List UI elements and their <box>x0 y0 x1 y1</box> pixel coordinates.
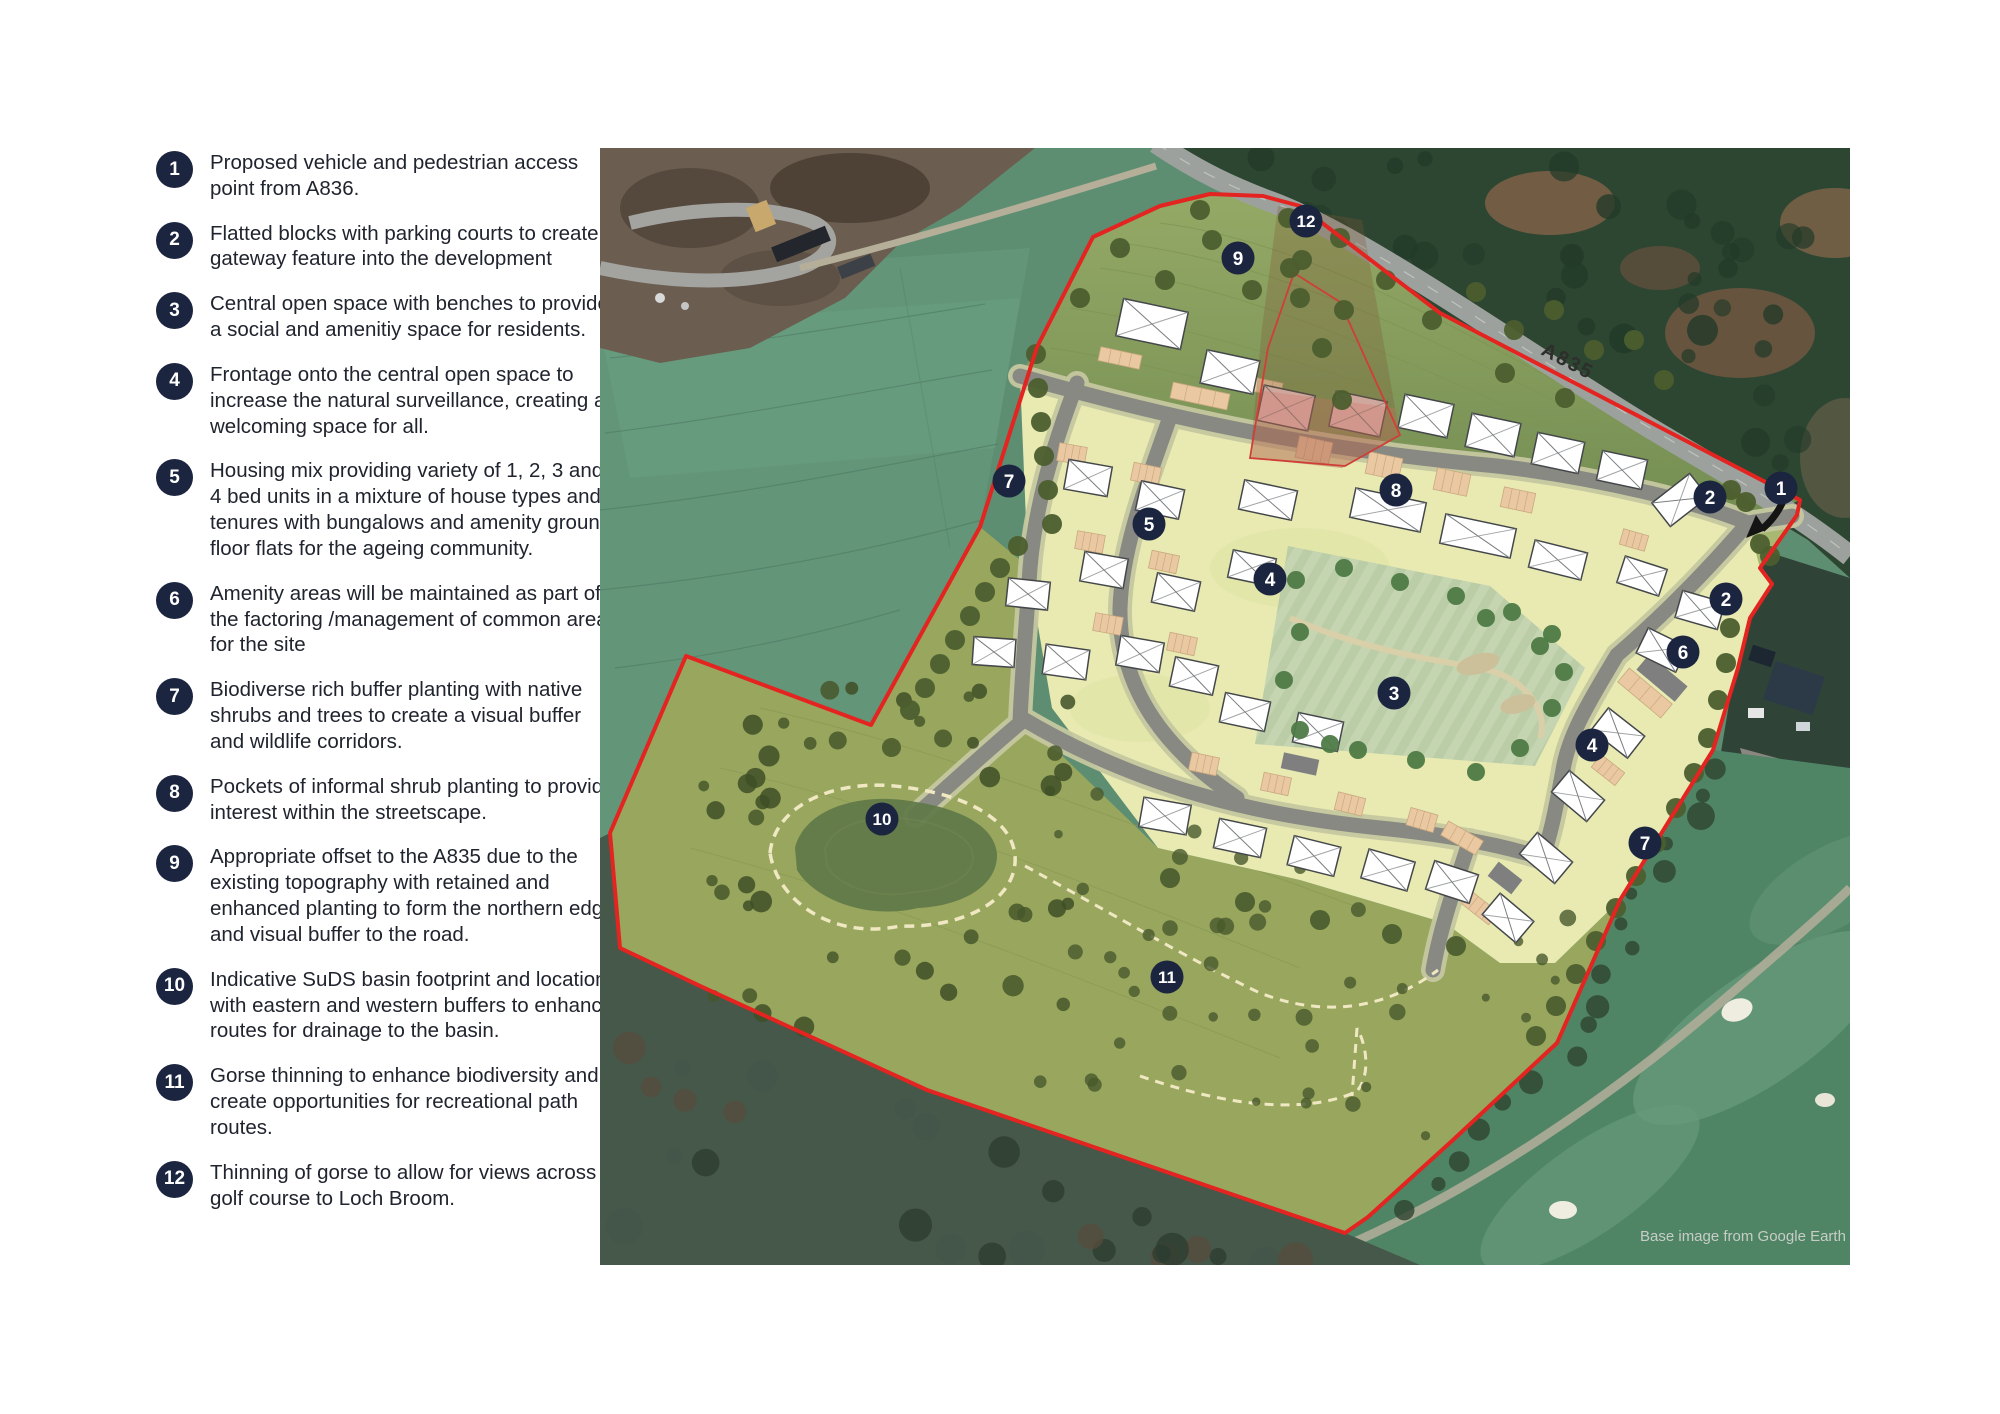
open-space-tree <box>1407 751 1425 769</box>
open-space-tree <box>1321 735 1339 753</box>
legend-item-text: Pockets of informal shrub planting to pr… <box>210 774 618 826</box>
buffer-tree <box>1466 282 1486 302</box>
buffer-tree <box>1242 280 1262 300</box>
buffer-tree <box>1446 936 1466 956</box>
svg-text:12: 12 <box>1297 212 1316 231</box>
legend-item: 7Biodiverse rich buffer planting with na… <box>156 677 618 754</box>
legend-item-text: Gorse thinning to enhance biodiversity a… <box>210 1063 618 1140</box>
map-badge-9: 9 <box>1222 242 1255 275</box>
legend-badge-number: 5 <box>156 459 193 496</box>
masterplan-map: A835 Base image from Google Earth 129758… <box>600 148 1850 1265</box>
svg-text:2: 2 <box>1721 590 1732 611</box>
open-space-tree <box>1555 663 1573 681</box>
legend-item: 3Central open space with benches to prov… <box>156 291 618 343</box>
svg-text:3: 3 <box>1389 684 1400 705</box>
svg-text:4: 4 <box>1587 736 1598 757</box>
svg-text:2: 2 <box>1705 488 1716 509</box>
buffer-tree <box>1042 514 1062 534</box>
buffer-tree <box>1720 618 1740 638</box>
legend-item-text: Indicative SuDS basin footprint and loca… <box>210 967 618 1044</box>
legend-item-text: Amenity areas will be maintained as part… <box>210 581 618 658</box>
masterplan-artwork: A835 Base image from Google Earth 129758… <box>600 148 1850 1265</box>
legend-badge-number: 7 <box>156 678 193 715</box>
buffer-tree <box>960 606 980 626</box>
buffer-tree <box>1031 412 1051 432</box>
svg-text:7: 7 <box>1640 834 1651 855</box>
open-space-tree <box>1291 721 1309 739</box>
buffer-tree <box>1312 338 1332 358</box>
house-footprint <box>972 637 1016 668</box>
buffer-tree <box>1544 300 1564 320</box>
legend-badge-number: 8 <box>156 775 193 812</box>
svg-text:5: 5 <box>1144 515 1155 536</box>
buffer-tree <box>1310 910 1330 930</box>
legend-item-text: Appropriate offset to the A835 due to th… <box>210 844 618 947</box>
map-badge-4: 4 <box>1254 563 1287 596</box>
buffer-tree <box>1155 270 1175 290</box>
open-space-tree <box>1467 763 1485 781</box>
buffer-tree <box>1202 230 1222 250</box>
legend-item: 11Gorse thinning to enhance biodiversity… <box>156 1063 618 1140</box>
legend-item: 5Housing mix providing variety of 1, 2, … <box>156 458 618 561</box>
buffer-tree <box>1008 536 1028 556</box>
legend-item: 2Flatted blocks with parking courts to c… <box>156 221 618 273</box>
buffer-tree <box>1160 868 1180 888</box>
svg-text:9: 9 <box>1233 249 1244 270</box>
buffer-tree <box>1495 363 1515 383</box>
house-footprint <box>1042 644 1090 680</box>
buffer-tree <box>1110 238 1130 258</box>
open-space-tree <box>1511 739 1529 757</box>
buffer-tree <box>990 558 1010 578</box>
open-space-tree <box>1543 699 1561 717</box>
buffer-tree <box>915 678 935 698</box>
legend-item-text: Frontage onto the central open space to … <box>210 362 618 439</box>
buffer-tree <box>1332 390 1352 410</box>
map-badge-6: 6 <box>1667 636 1700 669</box>
open-space-tree <box>1291 623 1309 641</box>
legend-item-text: Proposed vehicle and pedestrian access p… <box>210 150 618 202</box>
buffer-tree <box>1235 892 1255 912</box>
map-badge-2: 2 <box>1694 481 1727 514</box>
buffer-tree <box>1504 320 1524 340</box>
buffer-tree <box>975 582 995 602</box>
legend-item-text: Housing mix providing variety of 1, 2, 3… <box>210 458 618 561</box>
buffer-tree <box>900 700 920 720</box>
svg-text:7: 7 <box>1004 472 1015 493</box>
buffer-tree <box>1546 996 1566 1016</box>
open-space-tree <box>1477 609 1495 627</box>
buffer-tree <box>1034 446 1054 466</box>
svg-text:10: 10 <box>873 810 892 829</box>
legend-item-text: Flatted blocks with parking courts to cr… <box>210 221 618 273</box>
legend-badge-number: 11 <box>156 1064 193 1101</box>
open-space-tree <box>1335 559 1353 577</box>
buffer-tree <box>1624 330 1644 350</box>
house-footprint <box>1006 578 1051 610</box>
map-badge-3: 3 <box>1378 677 1411 710</box>
open-space-tree <box>1503 603 1521 621</box>
legend-badge-number: 4 <box>156 363 193 400</box>
svg-text:11: 11 <box>1158 968 1176 987</box>
map-badge-12: 12 <box>1290 205 1323 238</box>
buffer-tree <box>1190 200 1210 220</box>
legend-item: 9Appropriate offset to the A835 due to t… <box>156 844 618 947</box>
legend-item: 12Thinning of gorse to allow for views a… <box>156 1160 618 1212</box>
buffer-tree <box>1280 258 1300 278</box>
open-space-tree <box>1287 571 1305 589</box>
map-badge-8: 8 <box>1380 474 1413 507</box>
buffer-tree <box>1038 480 1058 500</box>
buffer-tree <box>1526 1026 1546 1046</box>
svg-text:1: 1 <box>1776 479 1787 500</box>
open-space-tree <box>1349 741 1367 759</box>
svg-text:4: 4 <box>1265 570 1276 591</box>
site-plan-page: 1Proposed vehicle and pedestrian access … <box>0 0 2000 1414</box>
buffer-tree <box>930 654 950 674</box>
open-space-tree <box>1391 573 1409 591</box>
legend-badge-number: 1 <box>156 151 193 188</box>
buffer-tree <box>1334 300 1354 320</box>
buffer-tree <box>1654 370 1674 390</box>
legend-badge-number: 10 <box>156 968 193 1005</box>
legend-item: 8Pockets of informal shrub planting to p… <box>156 774 618 826</box>
legend-item-text: Central open space with benches to provi… <box>210 291 618 343</box>
map-badge-10: 10 <box>866 803 899 836</box>
legend-item: 4Frontage onto the central open space to… <box>156 362 618 439</box>
map-badge-5: 5 <box>1133 508 1166 541</box>
open-space-tree <box>1275 671 1293 689</box>
legend-item-text: Biodiverse rich buffer planting with nat… <box>210 677 618 754</box>
buffer-tree <box>1736 492 1756 512</box>
svg-text:6: 6 <box>1678 643 1689 664</box>
legend-item: 6Amenity areas will be maintained as par… <box>156 581 618 658</box>
legend-badge-number: 6 <box>156 582 193 619</box>
map-badge-11: 11 <box>1151 961 1184 994</box>
legend-badge-number: 12 <box>156 1161 193 1198</box>
buffer-tree <box>1555 388 1575 408</box>
svg-text:8: 8 <box>1391 481 1402 502</box>
buffer-tree <box>1028 378 1048 398</box>
buffer-tree <box>1382 924 1402 944</box>
map-badge-7: 7 <box>993 465 1026 498</box>
buffer-tree <box>1290 288 1310 308</box>
buffer-tree <box>945 630 965 650</box>
legend-badge-number: 3 <box>156 292 193 329</box>
open-space-tree <box>1447 587 1465 605</box>
legend-badge-number: 9 <box>156 845 193 882</box>
legend-item-text: Thinning of gorse to allow for views acr… <box>210 1160 618 1212</box>
map-badge-4: 4 <box>1576 729 1609 762</box>
buffer-tree <box>1070 288 1090 308</box>
legend-badge-number: 2 <box>156 222 193 259</box>
open-space-tree <box>1531 637 1549 655</box>
buffer-tree <box>1716 653 1736 673</box>
legend-item: 1Proposed vehicle and pedestrian access … <box>156 150 618 202</box>
legend-item: 10Indicative SuDS basin footprint and lo… <box>156 967 618 1044</box>
legend-panel: 1Proposed vehicle and pedestrian access … <box>156 150 618 1230</box>
map-badge-1: 1 <box>1765 472 1798 505</box>
map-badge-2: 2 <box>1710 583 1743 616</box>
buffer-tree <box>1584 340 1604 360</box>
attribution-text: Base image from Google Earth <box>1640 1228 1846 1245</box>
map-badge-7: 7 <box>1629 827 1662 860</box>
